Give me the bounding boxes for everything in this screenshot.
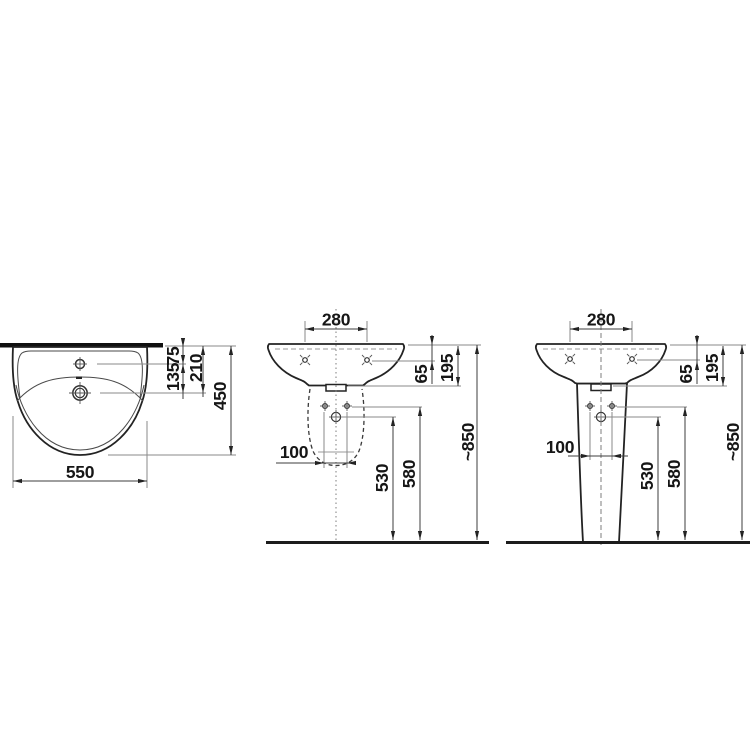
dim-label-580: 580 bbox=[399, 459, 419, 488]
pedestal-fixing-hole-icon bbox=[320, 401, 330, 411]
arrowhead bbox=[570, 327, 579, 331]
arrowhead bbox=[456, 346, 460, 355]
dim-label-65: 65 bbox=[676, 364, 696, 383]
arrowhead bbox=[305, 327, 314, 331]
dim-label-100: 100 bbox=[546, 437, 575, 457]
dim-label-195: 195 bbox=[702, 353, 722, 382]
dim-label-850: ~850 bbox=[723, 422, 743, 461]
pedestal-fixing-hole-icon bbox=[342, 401, 352, 411]
arrowhead bbox=[391, 531, 395, 540]
dim-label-280: 280 bbox=[587, 310, 616, 330]
arrowhead bbox=[695, 336, 699, 345]
dim-label-210: 210 bbox=[186, 353, 206, 382]
dim-label-100: 100 bbox=[280, 442, 309, 462]
dim-label-580: 580 bbox=[664, 459, 684, 488]
dim-label-850: ~850 bbox=[458, 422, 478, 461]
arrowhead bbox=[656, 531, 660, 540]
dim-label-75: 75 bbox=[163, 346, 183, 365]
technical-drawing-canvas: 75 135 210 450 550 bbox=[0, 0, 750, 750]
dim-label-135: 135 bbox=[163, 362, 183, 391]
overflow-mark bbox=[76, 377, 82, 380]
arrowhead bbox=[229, 346, 233, 355]
arrowhead bbox=[201, 384, 205, 393]
arrowhead bbox=[683, 531, 687, 540]
dim-label-450: 450 bbox=[210, 381, 230, 410]
front-view-pedestal: 280 65 195 ~850 580 530 100 bbox=[506, 309, 750, 545]
dim-label-530: 530 bbox=[372, 463, 392, 492]
dim-label-195: 195 bbox=[437, 353, 457, 382]
arrowhead bbox=[623, 327, 632, 331]
dim-label-550: 550 bbox=[66, 462, 95, 482]
arrowhead bbox=[347, 461, 356, 465]
arrowhead bbox=[475, 345, 479, 354]
arrowhead bbox=[740, 531, 744, 540]
arrowhead bbox=[740, 345, 744, 354]
arrowhead bbox=[391, 417, 395, 426]
arrowhead bbox=[656, 417, 660, 426]
dim-label-530: 530 bbox=[637, 461, 657, 490]
arrowhead bbox=[418, 407, 422, 416]
arrowhead bbox=[358, 327, 367, 331]
arrowhead bbox=[201, 346, 205, 355]
arrowhead bbox=[430, 336, 434, 345]
arrowhead bbox=[138, 479, 147, 483]
front-view-semi-pedestal: 280 65 195 ~850 580 530 100 bbox=[266, 309, 489, 543]
arrowhead bbox=[683, 407, 687, 416]
arrowhead bbox=[721, 346, 725, 355]
arrowhead bbox=[13, 479, 22, 483]
arrowhead bbox=[475, 531, 479, 540]
dim-label-280: 280 bbox=[322, 310, 351, 330]
top-view: 75 135 210 450 550 bbox=[0, 338, 236, 488]
arrowhead bbox=[229, 446, 233, 455]
arrowhead bbox=[418, 531, 422, 540]
dim-label-65: 65 bbox=[411, 364, 431, 383]
